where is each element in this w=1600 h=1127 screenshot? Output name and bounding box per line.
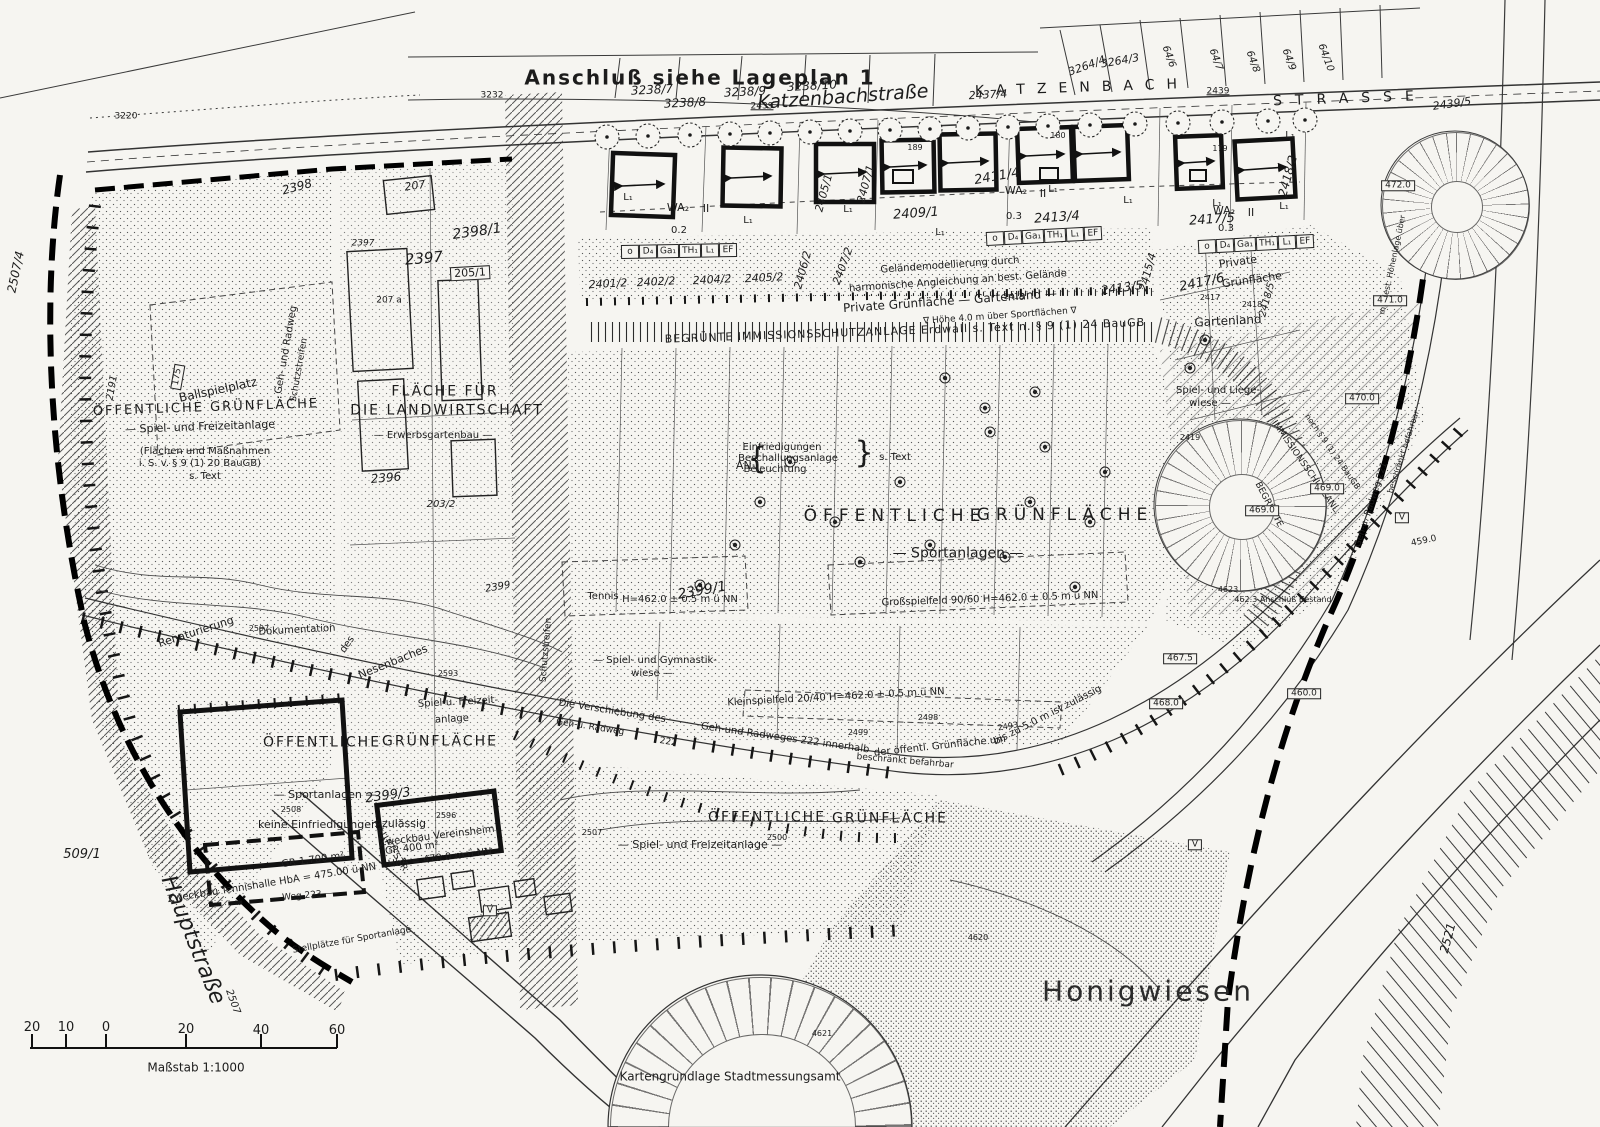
map-label: beschränkt befahrbar [856, 753, 954, 771]
map-label: Stellplätze für Sportanlage [292, 926, 412, 956]
map-label: 2405/2 [744, 271, 783, 285]
map-label: — Sportanlagen — [274, 789, 377, 801]
map-label: 207 [404, 179, 426, 193]
map-label: 64/9 [1279, 48, 1297, 73]
map-label: 459.0 [1410, 535, 1437, 550]
map-label: 2397 [404, 249, 443, 268]
map-label: L₁ [623, 193, 633, 204]
map-label: 2401/2 [588, 277, 627, 291]
map-label: 64/8 [1243, 50, 1261, 75]
map-label: Spiel-u. Freizeit- [418, 696, 499, 711]
map-label: 2417/5 [1189, 212, 1236, 229]
map-label: 471.0 [1373, 295, 1407, 306]
map-label: 3238/9 [724, 85, 767, 100]
map-label: Beleuchtung [743, 465, 806, 476]
map-label: 4620 [968, 934, 988, 942]
map-label: WA₂ [1005, 185, 1027, 197]
map-label: 205/1 [450, 265, 490, 281]
use-type-cell: L₁ [1278, 235, 1297, 250]
map-label: 10 [58, 1021, 75, 1035]
map-label: 470.0 [1345, 393, 1379, 404]
map-label: s. Text [879, 453, 911, 464]
site-plan-sheet: Anschluß siehe Lageplan 1Katzenbachstraß… [0, 0, 1600, 1127]
map-label: 2418/2 [1276, 154, 1299, 198]
map-label: Tennis [587, 592, 618, 603]
map-label: 2399 [485, 581, 512, 596]
map-label: L₁ [1285, 131, 1295, 142]
map-source-note: Kartengrundlage Stadtmessungsamt [620, 1071, 841, 1084]
map-label: 2498 [918, 714, 938, 722]
map-label: Großspielfeld 90/60 H=462.0 ± 0.5 m ü NN [881, 591, 1098, 609]
map-label: 462.3 Anschluß Bestand [1234, 596, 1331, 604]
public-green-west: ÖFFENTLICHE GRÜNFLÄCHE [93, 397, 320, 419]
map-label: Einfriedigungen [743, 443, 822, 454]
map-label: 20 [178, 1023, 195, 1037]
map-label: s. Text [189, 472, 221, 483]
map-label: wiese — [1189, 399, 1231, 410]
public-green-south: ÖFFENTLICHE [708, 811, 826, 826]
map-label: GRÜNFLÄCHE [382, 735, 498, 750]
use-type-cell: L₁ [1066, 227, 1085, 242]
map-label: Spiel- und Liege- [1176, 386, 1260, 397]
use-type-cell: D₄ [639, 244, 657, 258]
public-green-southwest: ÖFFENTLICHE [263, 736, 381, 751]
scale-tick-20l: 20 [24, 1021, 41, 1035]
map-label: 2439 [1207, 87, 1230, 96]
map-label: 2417/6 [1178, 272, 1226, 295]
use-type-cell: Ga₁ [657, 244, 679, 258]
area-honigwiesen: Honigwiesen [1042, 976, 1254, 1005]
map-label: 189 [907, 144, 922, 152]
map-label: Kleinspielfeld 20/40 H=462.0 ± 0.5 m ü N… [727, 687, 945, 709]
map-label: — Erwerbsgartenbau — [374, 431, 493, 442]
map-label: L₁ [1279, 202, 1289, 213]
map-label: L₁ [743, 216, 753, 227]
map-label: 2407/2 [831, 246, 855, 286]
public-green-central: ÖFFENTLICHE [804, 508, 987, 526]
map-label: Gartenland [1194, 313, 1262, 329]
map-label: 2191 [106, 375, 121, 402]
map-label: bis zu 5.0 m ist zulässig [992, 684, 1103, 748]
map-label: Geh-und Radweges 222 innerhalb [700, 722, 870, 756]
map-label: 4621 [812, 1030, 832, 1038]
map-label: 3238/7 [631, 83, 674, 98]
map-label: 64/10 [1315, 43, 1335, 74]
map-label: Dokumentation [258, 624, 336, 639]
map-label: 2439/5 [1432, 96, 1472, 113]
map-label: 2407/1 [855, 164, 876, 204]
map-label: V [1395, 512, 1409, 523]
map-label: i. S. v. § 9 (1) 20 BauGB) [139, 459, 261, 470]
map-label: 3220 [115, 112, 138, 121]
map-label: — Spiel- und Freizeitanlage [125, 419, 275, 436]
noise-protection-band-label: BEGRÜNTE IMMISSIONSSCHUTZANLAGE Erdwall … [665, 317, 1146, 345]
map-label: 180 [1050, 132, 1065, 140]
map-label: 2508 [281, 806, 301, 814]
map-label: 2417 [1200, 294, 1220, 302]
map-label: keine Einfriedigungen [258, 819, 378, 831]
map-label: DIE LANDWIRTSCHAFT [350, 404, 544, 419]
map-label: 175 [170, 364, 186, 391]
map-label: 64/6 [1159, 45, 1177, 70]
map-label: 2437/4 [968, 88, 1007, 102]
use-type-cell: EF [1296, 234, 1315, 249]
map-label: des [339, 635, 358, 656]
map-label: L₁ [935, 228, 945, 239]
map-label: 2521 [1438, 922, 1458, 955]
map-label: Renaturierung [157, 614, 235, 649]
map-label: 2596 [436, 812, 456, 820]
map-label: 460.0 [1287, 688, 1321, 699]
map-label: wiese — [631, 669, 673, 680]
map-label: IMMISSIONSSCHUTZANL. [1269, 419, 1341, 516]
map-label: 207 a [376, 296, 402, 305]
map-label: 2397 [352, 239, 375, 248]
map-label: L₁ [1123, 196, 1133, 207]
map-label: 472.0 [1381, 180, 1415, 191]
map-label: 179 [1212, 145, 1227, 153]
map-label: zulässig [382, 818, 426, 830]
map-label: — Sportanlagen — [893, 547, 1024, 562]
use-type-cell: TH₁ [679, 244, 701, 258]
map-label: 469.0 [1310, 483, 1344, 494]
map-label: 2507 [223, 988, 242, 1016]
map-label: 2413 [1004, 293, 1024, 301]
use-type-cell: o [621, 245, 639, 259]
map-label: — Weg 223 — [270, 890, 334, 905]
use-type-cell: o [1198, 239, 1217, 254]
map-label: 2507/4 [5, 250, 26, 294]
map-label: II [703, 203, 710, 215]
use-type-legend-row: oD₄Ga₁TH₁L₁EF [986, 226, 1103, 246]
map-label: beschränkt befahrbar [1387, 410, 1422, 495]
map-label: Nesenbaches [357, 643, 430, 681]
map-label: 2404/2 [692, 273, 731, 287]
map-label: WA₂ [667, 202, 689, 214]
map-label: 467.5 [1163, 653, 1197, 664]
use-type-cell: Ga₁ [1022, 229, 1045, 244]
map-label: II [1248, 207, 1255, 219]
map-label: 2507 [582, 829, 602, 837]
use-type-cell: L₁ [701, 243, 719, 257]
map-label: 2406/2 [792, 250, 813, 290]
map-label: 0 [102, 1021, 110, 1035]
map-label: 64/7 [1206, 48, 1224, 73]
map-label: — Spiel- und Gymnastik- [593, 656, 717, 667]
use-type-cell: o [986, 231, 1005, 246]
map-label: 3238/10 [787, 78, 837, 93]
map-label: Private [1218, 254, 1258, 271]
use-type-cell: EF [1084, 226, 1103, 241]
map-label: V [1188, 839, 1202, 850]
map-label: 3264/3 [1100, 52, 1140, 70]
map-label: 469.0 [1245, 505, 1279, 516]
map-label: anlage [435, 714, 469, 726]
map-label: 40 [253, 1024, 270, 1038]
map-label: 222 [659, 737, 677, 749]
map-label: 2409/1 [893, 206, 940, 223]
use-type-cell: Ga₁ [1234, 237, 1257, 252]
map-label: L₁ [843, 205, 853, 216]
map-label: } [854, 437, 873, 469]
use-type-cell: D₄ [1216, 238, 1235, 253]
map-label: 203/2 [427, 500, 456, 511]
map-label: — Spiel- und Freizeitanlage — [618, 839, 783, 851]
map-label: 2398/1 [452, 221, 503, 242]
map-label: 2398 [281, 177, 314, 197]
use-type-cell: EF [719, 243, 737, 257]
map-label: 4623 [1218, 586, 1238, 594]
map-labels-layer: Anschluß siehe Lageplan 1Katzenbachstraß… [0, 0, 1600, 1127]
agriculture-area-label: FLÄCHE FÜR [391, 385, 498, 400]
map-label: Geh-u. Radweg 221 [1354, 461, 1390, 548]
scale-caption: Maßstab 1:1000 [147, 1062, 244, 1075]
map-label: V [483, 905, 497, 916]
map-label: GRÜNFLÄCHE [977, 507, 1154, 525]
map-label: Schutzstreifen [539, 617, 554, 682]
map-label: L₁ [1212, 199, 1222, 210]
map-label: 2413/4 [1034, 210, 1081, 227]
use-type-cell: D₄ [1004, 230, 1023, 245]
map-label: GRÜNFLÄCHE [832, 812, 948, 827]
map-label: 0.3 [1006, 212, 1022, 223]
map-label: 60 [329, 1024, 346, 1038]
use-type-cell: TH₁ [1256, 236, 1279, 251]
map-label: L₁ [1048, 185, 1058, 196]
use-type-cell: TH₁ [1044, 228, 1067, 243]
map-label: Geh-u. Radweg [555, 718, 624, 738]
map-label: 2499 [848, 729, 868, 737]
use-type-legend-row: oD₄Ga₁TH₁L₁EF [1198, 234, 1315, 254]
use-type-legend-row: oD₄Ga₁TH₁L₁EF [621, 243, 737, 259]
street-strasse-caps: STRASSE [1273, 89, 1427, 109]
map-label: 2415/4 [1137, 252, 1158, 292]
map-label: 2593 [438, 670, 458, 678]
map-label: 2405/1 [813, 173, 834, 213]
map-label: 2419 [1180, 434, 1200, 442]
map-label: 3232 [481, 91, 504, 100]
map-label: II [1040, 188, 1047, 200]
map-label: (Flächen und Maßnahmen [140, 447, 270, 458]
map-label: 509/1 [63, 848, 100, 862]
map-label: Beschallungsanlage [738, 454, 838, 465]
map-label: 2439 [751, 102, 774, 111]
map-label: 3238/8 [664, 96, 707, 111]
map-label: 0.2 [671, 226, 687, 237]
map-label: 468.0 [1149, 698, 1183, 709]
map-label: 2500 [767, 834, 787, 842]
map-label: 2396 [370, 470, 402, 485]
map-label: 2402/2 [636, 275, 675, 289]
